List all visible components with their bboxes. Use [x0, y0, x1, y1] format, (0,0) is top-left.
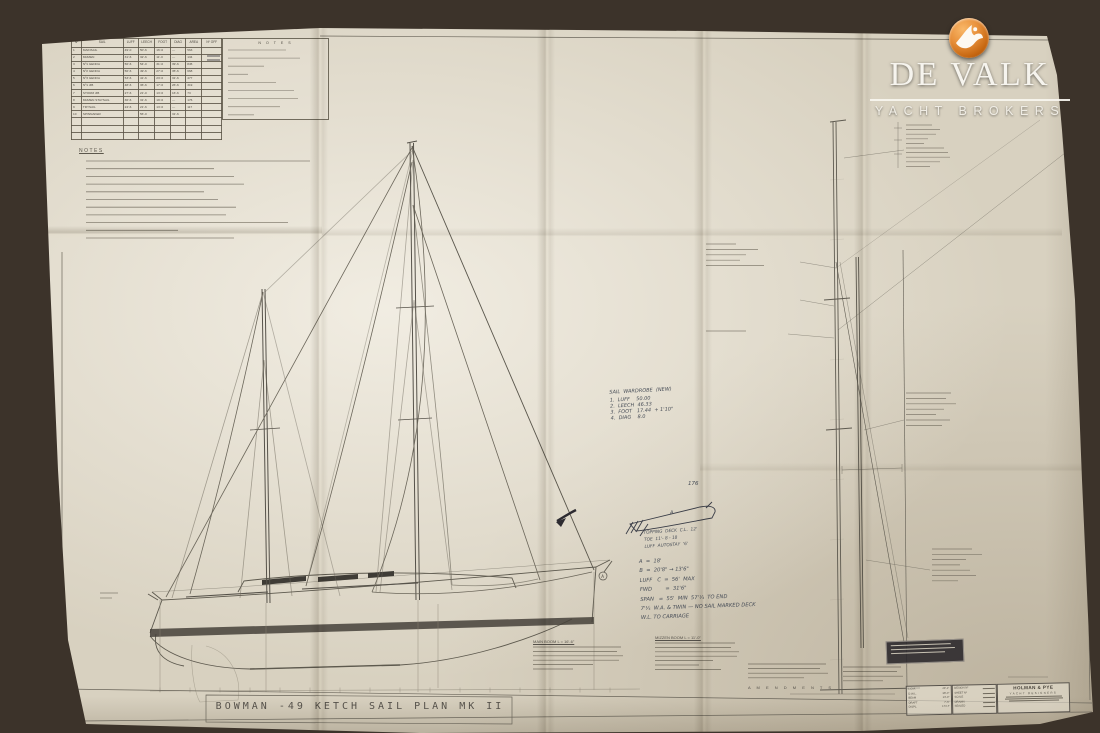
- table-header: LEECH: [138, 39, 154, 48]
- table-cell: [155, 118, 171, 125]
- table-cell: 31'-6: [170, 111, 185, 118]
- table-row: 9TRYSAIL24'-621'-613'-6—117: [72, 104, 222, 111]
- table-cell: 4: [72, 68, 82, 75]
- table-cell: [123, 111, 138, 118]
- table-cell: [155, 111, 171, 118]
- table-cell: 27'-6: [123, 90, 138, 97]
- table-cell: MIZZEN STAYSAIL: [81, 97, 123, 104]
- table-cell: 56'-6: [123, 61, 138, 68]
- table-cell: 36'-6: [123, 97, 138, 104]
- illegible-microtext: [86, 50, 1048, 694]
- table-cell: —: [170, 104, 185, 111]
- table-header: DIAG: [170, 39, 185, 48]
- table-cell: MIZZEN: [81, 54, 123, 61]
- table-cell: 56'-6: [123, 68, 138, 75]
- table-cell: Nº1 GENOA: [81, 61, 123, 68]
- table-cell: [202, 61, 222, 68]
- table-header: LUFF: [123, 39, 138, 48]
- table-cell: 21'-6: [138, 104, 154, 111]
- sails-and-rigging: [166, 146, 594, 598]
- table-header: AREA: [186, 39, 202, 48]
- handwritten-boom-note: TOPPING DECK C.L. 12'TOE 11'- 8 - 18LUFF…: [643, 526, 698, 551]
- table-cell: [81, 118, 123, 125]
- titleblock-row: SEALED: [955, 704, 995, 709]
- table-cell: 53'-6: [123, 75, 138, 82]
- table-cell: [186, 132, 202, 139]
- table-row: 10SPINNAKER56'-031'-6: [72, 111, 222, 118]
- title-block-firm: HOLMAN & PYE YACHT DESIGNERS: [997, 682, 1071, 714]
- table-cell: [138, 132, 154, 139]
- table-row: [72, 132, 222, 139]
- table-cell: 319: [186, 82, 202, 89]
- table-cell: [186, 111, 202, 118]
- amendments-strip-title: A M E N D M E N T S: [748, 685, 834, 690]
- photo-stage: A NºSAILLUFFLEECHFOOTDIAGAREANº OFF 1MAI…: [0, 0, 1100, 733]
- table-cell: [155, 132, 171, 139]
- table-cell: [202, 75, 222, 82]
- table-row: [72, 125, 222, 132]
- table-cell: [170, 132, 185, 139]
- table-cell: 11'-0: [155, 54, 171, 61]
- table-row: 4Nº2 GENOA56'-649'-627'-035'-6668: [72, 68, 222, 75]
- table-cell: 26'-6: [170, 82, 185, 89]
- table-cell: MAINSAIL: [81, 47, 123, 54]
- table-cell: —: [170, 54, 185, 61]
- table-cell: 31'-6: [170, 75, 185, 82]
- table-cell: 32'-6: [138, 54, 154, 61]
- table-cell: 49'-0: [123, 47, 138, 54]
- table-cell: [202, 90, 222, 97]
- table-cell: [72, 132, 82, 139]
- table-cell: 8: [72, 97, 82, 104]
- table-cell: 36'-6: [138, 82, 154, 89]
- table-cell: [202, 68, 222, 75]
- table-cell: 73: [186, 90, 202, 97]
- table-cell: 31'-6: [138, 97, 154, 104]
- table-cell: 13'-6: [155, 90, 171, 97]
- handwritten-wardrobe-list: SAIL WARDROBE (NEW) 1. LUFF 50.002. LEEC…: [609, 386, 674, 421]
- table-cell: [202, 97, 222, 104]
- table-cell: 49'-6: [138, 68, 154, 75]
- logo-divider: [870, 99, 1070, 101]
- table-cell: [123, 118, 138, 125]
- table-cell: [138, 125, 154, 132]
- table-cell: 19'-6: [155, 97, 171, 104]
- table-cell: [202, 82, 222, 89]
- table-cell: [81, 125, 123, 132]
- table-cell: [202, 54, 222, 61]
- table-row: 6Nº1 JIB48'-636'-617'-626'-6319: [72, 82, 222, 89]
- builder-stamp: [886, 639, 965, 665]
- table-cell: 13'-6: [155, 104, 171, 111]
- table-cell: Nº3 GENOA: [81, 75, 123, 82]
- table-cell: 16'-6: [155, 47, 171, 54]
- table-cell: 1: [72, 47, 82, 54]
- table-cell: Nº1 JIB: [81, 82, 123, 89]
- table-cell: 31'-6: [123, 54, 138, 61]
- table-row: 2MIZZEN31'-632'-611'-0—134: [72, 54, 222, 61]
- table-cell: STORM JIB: [81, 90, 123, 97]
- table-cell: TRYSAIL: [81, 104, 123, 111]
- table-cell: 9: [72, 104, 82, 111]
- table-cell: 23'-6: [155, 75, 171, 82]
- table-cell: [170, 125, 185, 132]
- table-cell: [138, 118, 154, 125]
- table-cell: 16'-6: [170, 90, 185, 97]
- table-cell: [186, 125, 202, 132]
- table-cell: 477: [186, 75, 202, 82]
- table-cell: [155, 125, 171, 132]
- table-row: 1MAINSAIL49'-050'-616'-6—563: [72, 47, 222, 54]
- cabin-windows: [262, 571, 394, 585]
- table-cell: [202, 132, 222, 139]
- paper-fold: [322, 228, 1062, 242]
- brand-tagline: YACHT BROKERS: [858, 104, 1082, 118]
- table-cell: 845: [186, 61, 202, 68]
- table-header: Nº OFF: [202, 39, 222, 48]
- table-cell: 54'-0: [138, 61, 154, 68]
- drawing-title: BOWMAN -49 KETCH SAIL PLAN MK II: [212, 701, 508, 712]
- table-cell: [202, 125, 222, 132]
- table-cell: 41'-6: [138, 75, 154, 82]
- firm-subtitle: YACHT DESIGNERS: [999, 690, 1067, 695]
- table-cell: 134: [186, 54, 202, 61]
- table-cell: 31'-0: [155, 61, 171, 68]
- table-cell: [170, 118, 185, 125]
- table-cell: 2: [72, 54, 82, 61]
- table-cell: [202, 104, 222, 111]
- table-cell: 56'-0: [138, 111, 154, 118]
- title-block: L.O.A.49'-1"D.W.L.38'-0"BEAM13'-9"DRAFT7…: [906, 682, 1071, 715]
- table-cell: 27'-0: [155, 68, 171, 75]
- table-header: SAIL: [81, 39, 123, 48]
- paper-fold: [310, 0, 328, 733]
- table-cell: 10: [72, 111, 82, 118]
- table-cell: 35'-6: [170, 68, 185, 75]
- table-cell: [186, 118, 202, 125]
- table-cell: [123, 132, 138, 139]
- paper-fold: [694, 0, 712, 733]
- table-cell: —: [170, 97, 185, 104]
- boom-sketch-label: A: [670, 510, 674, 516]
- table-cell: 563: [186, 47, 202, 54]
- table-cell: 176: [186, 97, 202, 104]
- table-header: Nº: [72, 39, 82, 48]
- table-cell: [72, 125, 82, 132]
- table-cell: 24'-6: [123, 104, 138, 111]
- table-row: 3Nº1 GENOA56'-654'-031'-039'-6845: [72, 61, 222, 68]
- titleblock-row: DISPL.17½ T: [909, 705, 950, 710]
- notes-heading: NOTES: [79, 148, 104, 154]
- title-block-dimensions: L.O.A.49'-1"D.W.L.38'-0"BEAM13'-9"DRAFT7…: [906, 685, 953, 716]
- table-cell: SPINNAKER: [81, 111, 123, 118]
- table-cell: —: [170, 47, 185, 54]
- table-cell: 6: [72, 82, 82, 89]
- table-cell: 7: [72, 90, 82, 97]
- paper-fold: [42, 226, 322, 240]
- paper-fold: [537, 0, 555, 733]
- svg-text:A: A: [601, 574, 604, 580]
- station-marker: A: [599, 572, 607, 580]
- table-row: 5Nº3 GENOA53'-641'-623'-631'-6477: [72, 75, 222, 82]
- paper-fold: [700, 463, 1090, 477]
- falcon-icon: [949, 18, 989, 58]
- table-cell: 117: [186, 104, 202, 111]
- boot-top-stripe: [150, 617, 594, 637]
- brand-name: DE VALK: [858, 56, 1082, 94]
- sail-dimension-table: NºSAILLUFFLEECHFOOTDIAGAREANº OFF 1MAINS…: [71, 38, 222, 140]
- spar-details: [788, 120, 1074, 694]
- table-cell: [123, 125, 138, 132]
- table-cell: 3: [72, 61, 82, 68]
- table-cell: 39'-6: [170, 61, 185, 68]
- table-row: [72, 118, 222, 125]
- table-cell: 21'-0: [138, 90, 154, 97]
- table-cell: 668: [186, 68, 202, 75]
- table-cell: Nº2 GENOA: [81, 68, 123, 75]
- table-cell: [202, 47, 222, 54]
- table-cell: 48'-6: [123, 82, 138, 89]
- table-cell: [202, 118, 222, 125]
- title-block-admin: DESIGN NºSHEET NºSCALEDRAWNSEALED: [952, 684, 998, 715]
- table-cell: [202, 111, 222, 118]
- table-cell: 17'-6: [155, 82, 171, 89]
- table-cell: 5: [72, 75, 82, 82]
- marker-arrow: [556, 510, 576, 527]
- table-cell: [72, 118, 82, 125]
- devalk-watermark: DE VALK YACHT BROKERS: [858, 4, 1082, 122]
- sketch-extras: [192, 645, 239, 702]
- table-row: 8MIZZEN STAYSAIL36'-631'-619'-6—176: [72, 97, 222, 104]
- table-row: 7STORM JIB27'-621'-013'-616'-673: [72, 90, 222, 97]
- table-cell: 50'-6: [138, 47, 154, 54]
- table-header: FOOT: [155, 39, 171, 48]
- table-cell: [81, 132, 123, 139]
